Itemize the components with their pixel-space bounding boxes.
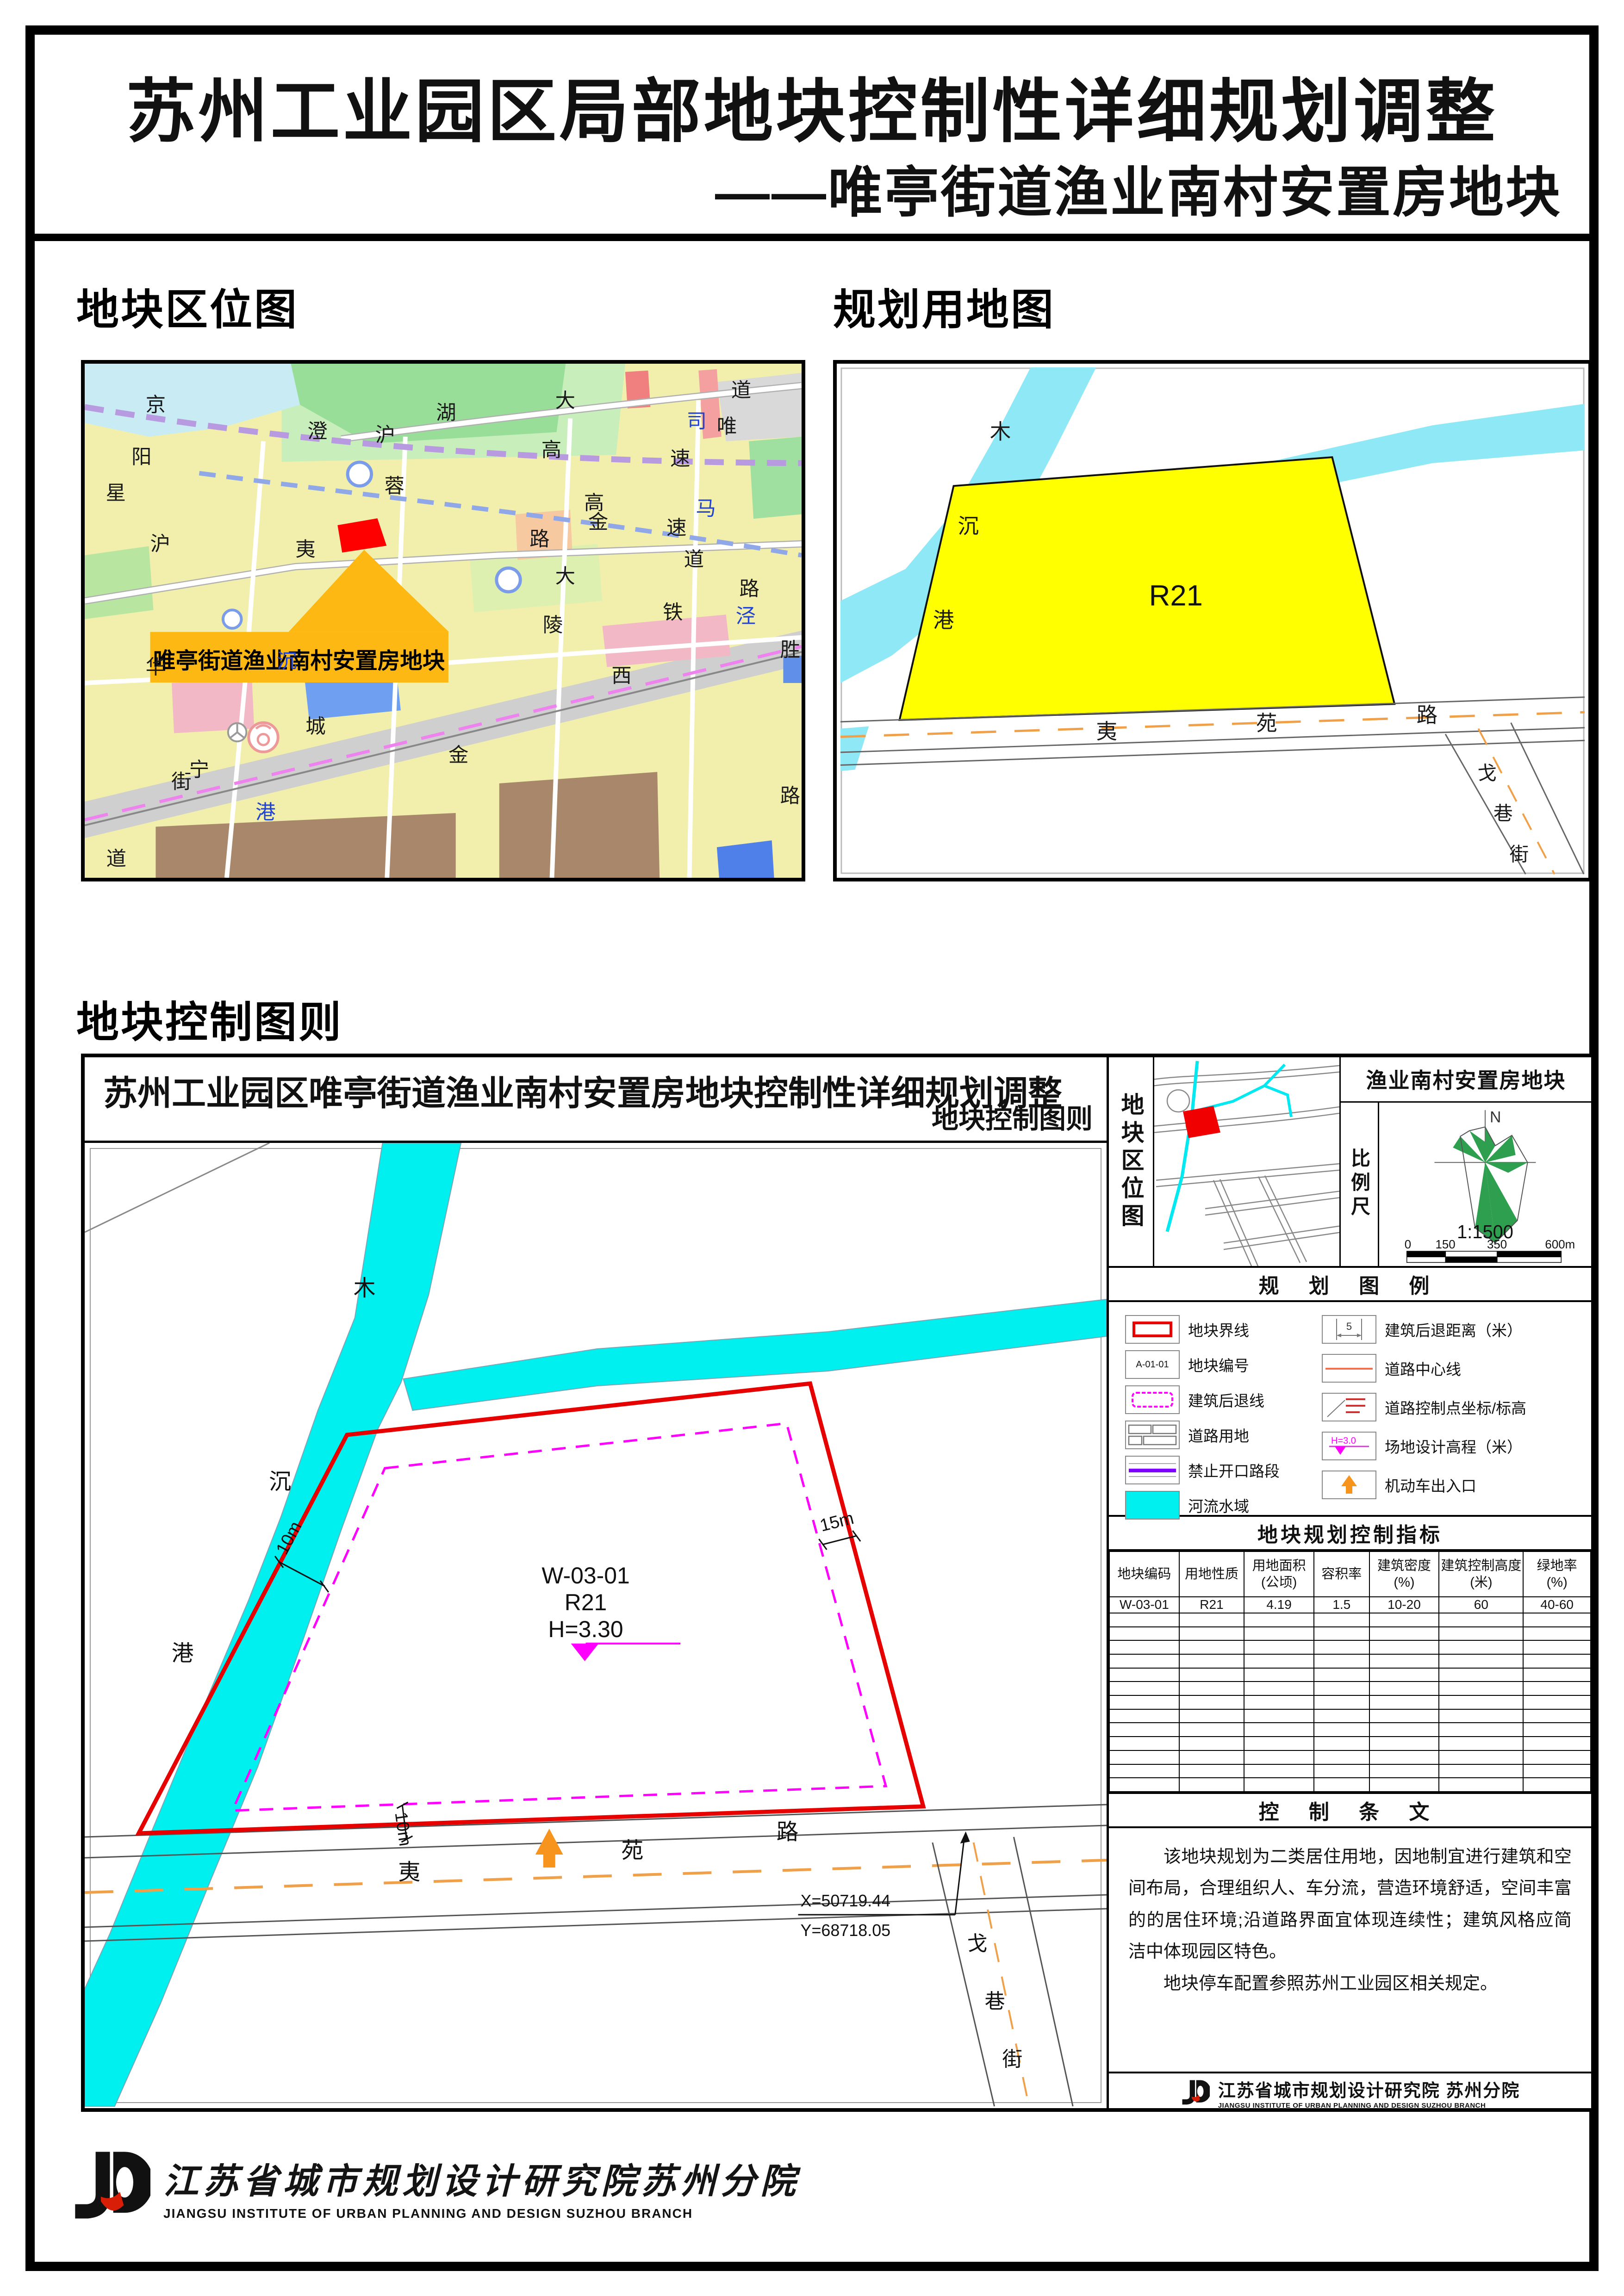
north-label: N <box>1490 1108 1501 1126</box>
table-cell <box>1109 1695 1179 1709</box>
centerline-swatch <box>1322 1354 1376 1383</box>
landuse-map: R21 木沉港夷苑路戈巷街 <box>833 360 1592 881</box>
plot-r21 <box>900 457 1394 720</box>
table-cell <box>1244 1654 1314 1668</box>
table-cell <box>1369 1682 1439 1695</box>
table-cell <box>1179 1750 1244 1764</box>
provisions-title: 控 制 条 文 <box>1109 1794 1591 1828</box>
table-cell <box>1314 1668 1369 1682</box>
table-cell <box>1179 1723 1244 1737</box>
frame-bottom <box>25 2262 1599 2271</box>
table-cell <box>1523 1627 1591 1641</box>
table-cell <box>1244 1640 1314 1654</box>
map-label: 木 <box>990 420 1011 444</box>
table-row <box>1109 1627 1591 1641</box>
plot-number-swatch: A-01-01 <box>1125 1350 1180 1379</box>
map-label: 苑 <box>1256 712 1277 735</box>
table-cell <box>1179 1654 1244 1668</box>
map-label: 路 <box>780 785 800 807</box>
table-cell <box>1244 1737 1314 1750</box>
table-cell <box>1369 1723 1439 1737</box>
legend-item-no-opening: 禁止开口路段 <box>1125 1456 1280 1484</box>
map-label: 蓉 <box>384 475 404 497</box>
region-map-label-text: 地块区位图 <box>1114 1092 1148 1231</box>
map-label: 胜 <box>780 639 800 661</box>
table-cell <box>1109 1640 1179 1654</box>
table-cell <box>1314 1640 1369 1654</box>
indicators-header-cell: 用地面积(公顷) <box>1244 1551 1314 1597</box>
street-label-1: 戈 <box>967 1932 988 1955</box>
table-cell <box>1439 1737 1523 1750</box>
no-opening-swatch <box>1125 1456 1180 1484</box>
legend-label: 建筑后退线 <box>1188 1389 1264 1411</box>
table-row <box>1109 1640 1591 1654</box>
legend-title: 规 划 图 例 <box>1109 1268 1591 1302</box>
plan-drawing-canvas: 10m 15m 10m W-03-01 R21 H=3.30 木 <box>85 1143 1107 2108</box>
legend-label: 场地设计高程（米） <box>1385 1435 1522 1457</box>
table-cell <box>1314 1627 1369 1641</box>
table-cell <box>1244 1750 1314 1764</box>
legend-right-column: 5 建筑后退距离（米） 道路中心线 <box>1322 1315 1526 1506</box>
map-label: 沉 <box>277 651 297 673</box>
table-row <box>1109 1654 1591 1668</box>
scale-label: 比例尺 <box>1341 1103 1379 1266</box>
scale-row: 比例尺 N <box>1341 1103 1591 1266</box>
table-cell <box>1244 1682 1314 1695</box>
indicators-header-cell: 绿地率(%) <box>1523 1551 1591 1597</box>
table-cell <box>1523 1723 1591 1737</box>
table-cell <box>1439 1668 1523 1682</box>
table-cell <box>1523 1709 1591 1723</box>
map-label: 路 <box>529 528 550 550</box>
table-cell <box>1523 1668 1591 1682</box>
sidebar-logo-cn: 江苏省城市规划设计研究院 苏州分院 <box>1218 2076 1520 2102</box>
legend-label: 道路控制点坐标/标高 <box>1385 1396 1526 1418</box>
legend-label: 道路中心线 <box>1385 1357 1461 1379</box>
page-title: 苏州工业园区局部地块控制性详细规划调整 <box>35 56 1589 156</box>
legend-left-column: 地块界线 A-01-01 地块编号 建筑后退线 <box>1125 1315 1280 1526</box>
river-label-1: 木 <box>354 1276 376 1301</box>
setback-sample: 5 <box>1346 1321 1352 1332</box>
table-cell <box>1314 1654 1369 1668</box>
header-rule <box>35 234 1589 241</box>
landuse-map-canvas: R21 木沉港夷苑路戈巷街 <box>837 364 1588 878</box>
river-label-2: 沉 <box>269 1470 291 1494</box>
map-label: 澄 <box>307 421 328 443</box>
footer-logo-cn: 江苏省城市规划设计研究院苏州分院 <box>163 2153 800 2203</box>
table-cell <box>1109 1627 1179 1641</box>
table-cell <box>1369 1627 1439 1641</box>
table-cell: 40-60 <box>1523 1597 1591 1613</box>
plot-title: 渔业南村安置房地块 <box>1341 1057 1591 1103</box>
table-cell <box>1314 1695 1369 1709</box>
table-cell <box>1109 1764 1179 1778</box>
region-minimap <box>1154 1057 1341 1266</box>
table-row <box>1109 1709 1591 1723</box>
panel-title-band: 苏州工业园区唯亭街道渔业南村安置房地块控制性详细规划调整 地块控制图则 <box>85 1057 1109 1143</box>
table-cell <box>1314 1764 1369 1778</box>
map-label: 路 <box>739 578 759 600</box>
scale-tick-350: 350 <box>1487 1237 1507 1251</box>
provisions-text: 该地块规划为二类居住用地，因地制宜进行建筑和空间布局，合理组织人、车分流，营造环… <box>1109 1828 1591 2073</box>
table-cell <box>1523 1764 1591 1778</box>
callout-label: 唯亭街道渔业南村安置房地块 <box>153 649 445 674</box>
legend-label: 机动车出入口 <box>1385 1474 1476 1496</box>
map-label: 西 <box>611 665 632 687</box>
legend-item-setback-line: 建筑后退线 <box>1125 1385 1280 1414</box>
coord-x: X=50719.44 <box>800 1891 890 1910</box>
map-label: 华 <box>146 656 166 678</box>
plan-sheet: 苏州工业园区局部地块控制性详细规划调整 ——唯亭街道渔业南村安置房地块 地块区位… <box>0 0 1624 2296</box>
legend-item-elevation: H=3.0 场地设计高程（米） <box>1322 1432 1526 1460</box>
map-label: 道 <box>684 549 704 571</box>
map-label: 金 <box>448 745 469 767</box>
table-cell <box>1314 1723 1369 1737</box>
map-label: 道 <box>106 848 127 870</box>
map-label: 泾 <box>735 605 756 627</box>
sidebar-logo-row: 江苏省城市规划设计研究院 苏州分院 JIANGSU INSTITUTE OF U… <box>1109 2073 1591 2112</box>
street-label-3: 街 <box>1002 2048 1023 2071</box>
table-cell <box>1439 1750 1523 1764</box>
table-row <box>1109 1750 1591 1764</box>
table-cell <box>1179 1695 1244 1709</box>
table-cell <box>1369 1737 1439 1750</box>
table-cell <box>1179 1668 1244 1682</box>
scale-label-text: 比例尺 <box>1345 1148 1374 1220</box>
map-label: 高 <box>541 439 562 461</box>
map-label: 铁 <box>663 602 683 624</box>
map-label: 陵 <box>543 614 563 637</box>
table-cell <box>1179 1682 1244 1695</box>
table-cell <box>1109 1613 1179 1627</box>
entrance-swatch <box>1322 1471 1376 1499</box>
footer-logo-en: JIANGSU INSTITUTE OF URBAN PLANNING AND … <box>163 2206 800 2221</box>
indicators-table: 地块编码用地性质用地面积(公顷)容积率建筑密度(%)建筑控制高度(米)绿地率(%… <box>1109 1551 1591 1792</box>
table-cell: W-03-01 <box>1109 1597 1179 1613</box>
table-cell <box>1523 1682 1591 1695</box>
table-cell <box>1439 1640 1523 1654</box>
table-row <box>1109 1668 1591 1682</box>
institute-logo-icon <box>69 2146 150 2227</box>
table-cell <box>1179 1778 1244 1792</box>
table-cell <box>1244 1709 1314 1723</box>
map-label: 沉 <box>958 515 979 538</box>
plot-elevation: H=3.30 <box>548 1616 623 1642</box>
map-label: 夷 <box>1096 720 1117 743</box>
table-cell <box>1369 1668 1439 1682</box>
road-label-3: 路 <box>777 1820 799 1844</box>
table-cell <box>1439 1695 1523 1709</box>
panel-subtitle: 地块控制图则 <box>932 1097 1093 1136</box>
map-label: 宁 <box>189 759 210 781</box>
plan-drawing: 10m 15m 10m W-03-01 R21 H=3.30 木 <box>85 1143 1109 2108</box>
control-point-swatch <box>1322 1393 1376 1421</box>
sidebar-region-right: 渔业南村安置房地块 比例尺 N <box>1341 1057 1591 1266</box>
indicators-header-cell: 建筑控制高度(米) <box>1439 1551 1523 1597</box>
table-cell <box>1244 1723 1314 1737</box>
frame-left <box>25 25 35 2271</box>
table-cell <box>1109 1709 1179 1723</box>
compass-canvas: N <box>1379 1103 1591 1266</box>
table-cell <box>1109 1737 1179 1750</box>
table-cell <box>1369 1695 1439 1709</box>
indicators-header-cell: 地块编码 <box>1109 1551 1179 1597</box>
table-cell <box>1244 1778 1314 1792</box>
table-cell <box>1109 1668 1179 1682</box>
street-label-2: 巷 <box>985 1990 1005 2013</box>
table-row <box>1109 1613 1591 1627</box>
panel-sidebar: 地块区位图 <box>1109 1057 1591 2108</box>
legend-item-entrance: 机动车出入口 <box>1322 1471 1526 1499</box>
table-cell <box>1369 1750 1439 1764</box>
table-cell <box>1244 1613 1314 1627</box>
river-swatch <box>1125 1491 1180 1520</box>
scale-bar-icon <box>1407 1251 1562 1262</box>
indicators-header-cell: 用地性质 <box>1179 1551 1244 1597</box>
table-cell <box>1523 1778 1591 1792</box>
map-label: 唯 <box>717 416 737 438</box>
provisions-paragraph-2: 地块停车配置参照苏州工业园区相关规定。 <box>1128 1968 1572 1999</box>
table-cell: 1.5 <box>1314 1597 1369 1613</box>
table-cell: 60 <box>1439 1597 1523 1613</box>
map-label: 沪 <box>150 533 171 555</box>
table-cell <box>1439 1778 1523 1792</box>
table-cell <box>1523 1613 1591 1627</box>
map-label: 港 <box>933 608 954 632</box>
table-cell: 4.19 <box>1244 1597 1314 1613</box>
map-label: 速 <box>666 517 687 540</box>
map-label: 街 <box>1510 844 1529 865</box>
legend-label: 建筑后退距离（米） <box>1385 1318 1522 1340</box>
table-cell <box>1314 1682 1369 1695</box>
legend-label: 河流水域 <box>1188 1494 1249 1516</box>
table-cell: 10-20 <box>1369 1597 1439 1613</box>
map-label: 港 <box>255 801 276 824</box>
legend-item-control-point: 道路控制点坐标/标高 <box>1322 1393 1526 1421</box>
elevation-sample: H=3.0 <box>1331 1436 1356 1446</box>
legend-label: 地块编号 <box>1188 1353 1249 1376</box>
footer-logo: 江苏省城市规划设计研究院苏州分院 JIANGSU INSTITUTE OF UR… <box>69 2146 800 2227</box>
plot-boundary-swatch <box>1125 1315 1180 1344</box>
indicators-header-cell: 容积率 <box>1314 1551 1369 1597</box>
map-label: 大 <box>555 565 576 588</box>
table-cell <box>1109 1654 1179 1668</box>
location-map: 唯亭街道渔业南村安置房地块 京沪高速蓉高速湖大道司唯马金路道大陵铁泾路胜西城金宁… <box>81 360 805 881</box>
indicators-table-section: 地块编码用地性质用地面积(公顷)容积率建筑密度(%)建筑控制高度(米)绿地率(%… <box>1109 1551 1591 1794</box>
table-cell <box>1244 1668 1314 1682</box>
table-cell <box>1109 1682 1179 1695</box>
table-cell <box>1523 1640 1591 1654</box>
table-cell <box>1179 1709 1244 1723</box>
map-label: 速 <box>670 448 691 470</box>
table-cell <box>1314 1737 1369 1750</box>
table-cell <box>1314 1709 1369 1723</box>
road-label-2: 苑 <box>621 1838 643 1863</box>
table-cell <box>1369 1778 1439 1792</box>
setback-swatch <box>1125 1385 1180 1414</box>
map-label: 阳 <box>131 446 152 468</box>
page-subtitle: ——唯亭街道渔业南村安置房地块 <box>35 148 1562 227</box>
map-label: 沪 <box>375 424 396 447</box>
scale-tick-0: 0 <box>1405 1237 1411 1251</box>
table-row <box>1109 1695 1591 1709</box>
plot-use: R21 <box>565 1589 607 1615</box>
legend-item-road-land: 道路用地 <box>1125 1421 1280 1449</box>
table-row <box>1109 1778 1591 1792</box>
table-cell <box>1439 1723 1523 1737</box>
table-cell <box>1523 1695 1591 1709</box>
table-cell <box>1314 1613 1369 1627</box>
control-plan-panel: 苏州工业园区唯亭街道渔业南村安置房地块控制性详细规划调整 地块控制图则 <box>81 1054 1595 2112</box>
indicators-table-head: 地块编码用地性质用地面积(公顷)容积率建筑密度(%)建筑控制高度(米)绿地率(%… <box>1109 1551 1591 1597</box>
legend-label: 禁止开口路段 <box>1188 1459 1280 1481</box>
map-label: 城 <box>305 716 326 738</box>
map-label: 京 <box>146 394 166 416</box>
map-label: 湖 <box>436 402 456 424</box>
legend-item-centerline: 道路中心线 <box>1322 1354 1526 1383</box>
table-cell <box>1439 1627 1523 1641</box>
scale-tick-150: 150 <box>1435 1237 1455 1251</box>
map-label: 巷 <box>1493 802 1513 824</box>
legend-label: 道路用地 <box>1188 1424 1249 1446</box>
plot-number-sample: A-01-01 <box>1136 1359 1169 1370</box>
table-row <box>1109 1737 1591 1750</box>
table-cell <box>1369 1640 1439 1654</box>
legend-item-river: 河流水域 <box>1125 1491 1280 1520</box>
map-label: 大 <box>555 390 576 412</box>
table-cell <box>1523 1750 1591 1764</box>
table-cell <box>1369 1764 1439 1778</box>
table-cell <box>1244 1695 1314 1709</box>
table-row <box>1109 1723 1591 1737</box>
map-label: 戈 <box>1477 762 1497 784</box>
compass-area: N <box>1379 1103 1591 1266</box>
table-cell <box>1369 1709 1439 1723</box>
map-label: 马 <box>696 497 716 520</box>
section-control-plan: 地块控制图则 <box>76 988 343 1049</box>
legend-item-plot-boundary: 地块界线 <box>1125 1315 1280 1344</box>
table-cell: R21 <box>1179 1597 1244 1613</box>
table-cell <box>1439 1654 1523 1668</box>
plot-code: W-03-01 <box>541 1563 629 1589</box>
table-cell <box>1439 1709 1523 1723</box>
table-cell <box>1179 1640 1244 1654</box>
map-label: 金 <box>588 511 609 534</box>
section-location-map: 地块区位图 <box>76 275 299 337</box>
legend-item-setback-distance: 5 建筑后退距离（米） <box>1322 1315 1526 1344</box>
table-cell <box>1439 1613 1523 1627</box>
river-label-3: 港 <box>172 1641 194 1666</box>
table-cell <box>1523 1654 1591 1668</box>
table-cell <box>1314 1750 1369 1764</box>
institute-logo-icon <box>1180 2078 1210 2108</box>
map-label: 星 <box>106 482 126 504</box>
scale-tick-600: 600m <box>1545 1237 1575 1251</box>
table-cell <box>1244 1627 1314 1641</box>
table-cell <box>1244 1764 1314 1778</box>
location-map-canvas: 唯亭街道渔业南村安置房地块 京沪高速蓉高速湖大道司唯马金路道大陵铁泾路胜西城金宁… <box>85 364 802 878</box>
table-row <box>1109 1682 1591 1695</box>
table-cell <box>1109 1750 1179 1764</box>
table-cell <box>1439 1764 1523 1778</box>
coord-y: Y=68718.05 <box>800 1921 890 1940</box>
table-row: W-03-01R214.191.510-206040-60 <box>1109 1597 1591 1613</box>
road-label-1: 夷 <box>398 1860 420 1885</box>
provisions-paragraph-1: 该地块规划为二类居住用地，因地制宜进行建筑和空间布局，合理组织人、车分流，营造环… <box>1128 1841 1572 1968</box>
map-label: 司 <box>687 410 707 433</box>
table-cell <box>1179 1613 1244 1627</box>
frame-top <box>25 25 1599 35</box>
road-land-swatch <box>1125 1421 1180 1449</box>
setback-distance-swatch: 5 <box>1322 1315 1376 1344</box>
table-cell <box>1179 1764 1244 1778</box>
table-cell <box>1314 1778 1369 1792</box>
map-label: 夷 <box>295 539 316 561</box>
table-cell <box>1369 1613 1439 1627</box>
table-row <box>1109 1764 1591 1778</box>
table-cell <box>1179 1737 1244 1750</box>
region-map-label: 地块区位图 <box>1109 1057 1154 1266</box>
map-label: 路 <box>1417 703 1438 727</box>
sidebar-region-section: 地块区位图 <box>1109 1057 1591 1268</box>
legend-item-plot-number: A-01-01 地块编号 <box>1125 1350 1280 1379</box>
table-cell <box>1109 1778 1179 1792</box>
legend-label: 地块界线 <box>1188 1318 1249 1340</box>
sidebar-logo-en: JIANGSU INSTITUTE OF URBAN PLANNING AND … <box>1218 2102 1520 2110</box>
car-logo-icon <box>228 723 247 741</box>
elevation-swatch: H=3.0 <box>1322 1432 1376 1460</box>
plot-r21-label: R21 <box>1149 580 1203 612</box>
legend-section: 地块界线 A-01-01 地块编号 建筑后退线 <box>1109 1302 1591 1517</box>
section-landuse-map: 规划用地图 <box>833 275 1055 337</box>
table-cell <box>1109 1723 1179 1737</box>
map-label: 道 <box>731 379 752 402</box>
table-cell <box>1179 1627 1244 1641</box>
railway-station-icon <box>249 723 278 752</box>
table-cell <box>1439 1682 1523 1695</box>
region-minimap-canvas <box>1154 1057 1339 1266</box>
table-cell <box>1369 1654 1439 1668</box>
indicators-header-cell: 建筑密度(%) <box>1369 1551 1439 1597</box>
map-label: 街 <box>171 771 192 793</box>
table-cell <box>1523 1737 1591 1750</box>
